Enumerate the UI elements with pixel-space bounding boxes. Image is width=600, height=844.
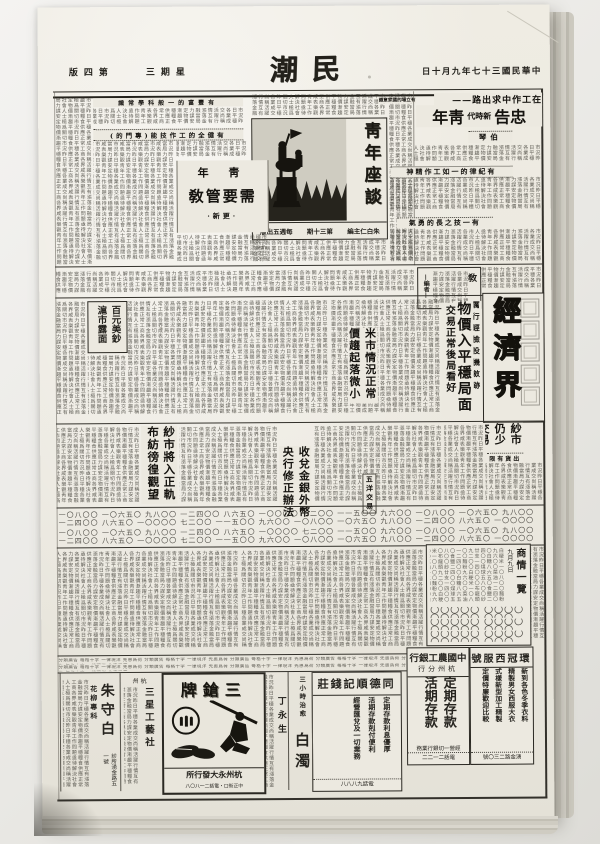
usd-headline-box: 百元美鈔滬市露面 (87, 301, 127, 353)
ad-ding-name: 丁永生 (275, 696, 288, 752)
yarn-market-headline: 紗市將入正軌布紡徬徨觀望 (141, 426, 177, 504)
forum-issue: 第三十期 (307, 226, 333, 236)
ad-ding: 市況昨日平穩各業成交尚稱活躍行情互有漲落金融當局力謀安定物價漸趨平穩糧食供應正常… (264, 672, 288, 790)
ad-sanxing-body: 市況昨日平穩各業成交尚稱活躍行情互有漲落金融當局力謀安定物價漸趨平穩糧食供應正常… (124, 687, 139, 787)
yarn-trading-subhead: 出貨有限 (487, 453, 523, 463)
scanned-newspaper-photo: 第四版 星期三 民潮 中華民國三十七年九月十日 市況昨日平穩各業成交尚稱活躍行情… (0, 0, 600, 844)
market-table-title: 商情一覽 (512, 548, 527, 598)
masthead-title: 民潮 (257, 47, 354, 89)
body-text-column: 市況昨日平穩各業成交尚稱活躍行情互有漲落金融當局力謀安定物價漸趨平穩糧食供應正常… (391, 177, 541, 214)
body-text-column: 市況昨日平穩各業成交尚稱活躍行情互有漲落金融當局力謀安定物價漸趨平穩糧食供應正常… (391, 229, 541, 264)
notice-head: 敎 (468, 271, 477, 284)
ad-qianzhuang-lines: 定期存款利息優厚 活期存款剋付便利 經營匯兌及一切業務 (319, 696, 395, 764)
ad-sanxing-name: 三星工藝社 (141, 687, 155, 759)
ad-bank-name: 中國農工銀行 (407, 648, 468, 664)
lead-title-seg2: 新時代 (467, 110, 491, 121)
ad-ding-body: 市況昨日平穩各業成交尚稱活躍行情互有漲落金融當局力謀安定物價漸趨平穩糧食供應正常… (266, 674, 275, 788)
usd-headline: 百元美鈔滬市露面 (93, 305, 121, 349)
newspaper-page: 第四版 星期三 民潮 中華民國三十七年九月十日 市況昨日平穩各業成交尚稱活躍行情… (38, 4, 555, 821)
forum-editor: 朱白仁主編 (347, 225, 380, 235)
scan-speck (368, 76, 371, 79)
body-text-column: 市況昨日平穩各業成交尚稱活躍行情互有漲落金融當局力謀安定物價漸趨平穩糧食供應正常… (93, 107, 243, 126)
youth-article-title-block: 靑 年 需要管敎 ·更新· (176, 160, 268, 233)
ad-baizhuo: 三小時治愈 白濁 (288, 672, 314, 790)
price-quote-row: 一〇八〇〇 一〇六五〇 九八〇〇 一二四〇〇 八六五〇 一〇〇〇〇 七二〇〇 一… (59, 508, 543, 527)
right-frame-rule (541, 88, 547, 798)
lead-author: 伯琴 (468, 131, 512, 143)
subhead-work-skill: 有健全的工作技能(專門的) (93, 128, 243, 141)
market-circles-row: 〇〇〇〇〇 〇〇〇〇 〇〇〇〇〇 〇〇〇 〇〇〇〇 〇〇〇〇〇 (430, 607, 526, 619)
body-text-column: 市況昨日平穩各業成交尚稱活躍行情互有漲落金融當局力謀安定物價漸趨平穩糧食供應正常… (127, 300, 328, 419)
economy-deck: 交易正常後局看好 (441, 305, 457, 417)
body-text-column: 市況昨日平穩各業成交尚稱活躍行情互有漲落金融當局力謀安定物價漸趨平穩糧食供應正常… (58, 550, 239, 653)
ad-bank: 中國農工銀行 杭州分行 定期存款 活期存款 經營一切銀行業務 電話二一二二 (406, 647, 470, 765)
scan-speck (469, 205, 472, 207)
page-number-label: 第四版 (62, 65, 114, 78)
market-table-box: 商情一覽 九月九日 白粳米一〇八〇〇麵粉九六〇〇菜油一二四〇〇白糖八六五〇食鹽二… (426, 544, 532, 647)
ad-suit-shop-footer: 湧金路二三〇號 (471, 752, 533, 761)
body-text-column: 市況昨日平穩各業成交尚稱活躍行情互有漲落金融當局力謀安定物價漸趨平穩糧食供應正常… (531, 546, 545, 642)
body-text-column: 市況昨日平穩各業成交尚稱活躍行情互有漲落金融當局力謀安定物價漸趨平穩糧食供應正常… (252, 239, 386, 262)
body-text-column: 市況昨日平穩各業成交尚稱活躍行情互有漲落金融當局力謀安定物價漸趨平穩糧食供應正常… (444, 425, 483, 503)
ad-sanxing-city: 杭州 (121, 673, 161, 685)
body-text-column: 市況昨日平穩各業成交尚稱活躍行情互有漲落金融當局力謀安定物價漸趨平穩糧食供應正常… (179, 426, 277, 505)
body-text-column: 市況昨日平穩各業成交尚稱活躍行情互有漲落金融當局力謀安定物價漸趨平穩糧食供應正常… (251, 93, 385, 116)
scan-speck (110, 477, 112, 479)
economy-banner-box: 經濟界 (482, 292, 545, 422)
youth-forum-box: 靑年座談 朱白仁主編 第三十期 每週五出版 (251, 117, 388, 240)
trademark-bullets-icon (172, 707, 200, 735)
rice-market-headline: 米市情況正常價趨起落微小 (349, 328, 377, 404)
lead-title-seg3: 靑年 (432, 104, 464, 127)
body-text-column: 市況昨日平穩各業成交尚稱活躍行情互有漲落金融當局力謀安定物價漸趨平穩糧食供應正常… (176, 140, 246, 158)
ad-sanqiang-address: 中正街口・電話二一八〇八 (164, 782, 264, 790)
ad-sanqiang: 三鎗牌 杭州永大發行所 中正街口・電話二一八〇八 (162, 672, 267, 795)
economy-banner-title: 經濟界 (485, 296, 526, 418)
yarn-trading-headline: 紗市仍少交易 (485, 423, 523, 450)
bottom-rule (57, 796, 547, 801)
body-text-column: 市況昨日平穩各業成交尚稱活躍行情互有漲落金融當局力謀安定物價漸趨平穩糧食供應正常… (241, 549, 424, 652)
subhead-one-skill: 有一技之長的勇氣 (397, 217, 493, 229)
issue-date: 中華民國三十七年九月十日 (380, 64, 542, 77)
body-text-column: 市況昨日平穩各業成交尚稱活躍行情互有漲落金融當局力謀安定物價漸趨平穩糧食供應正常… (88, 355, 126, 419)
ad-sanqiang-dealer: 杭州永大發行所 (164, 767, 264, 781)
ad-doctor-zhu: 朱守白 花柳專科 診所湧金路五一號 市況昨日平穩各業成交尚稱活躍行情互有漲落金融… (60, 673, 122, 791)
ad-qianzhuang-name: 同德順記錢莊 (313, 672, 401, 696)
body-text-column: 市況昨日平穩各業成交尚稱活躍行情互有漲落金融當局力謀安定物價漸趨平穩糧食供應正常… (56, 269, 414, 295)
body-text-column: 市況昨日平穩各業成交尚稱活躍行情互有漲落金融當局力謀安定物價漸趨平穩糧食供應正常… (481, 267, 541, 293)
body-text-column: 市況昨日平穩各業成交尚稱活躍行情互有漲落金融當局力謀安定物價漸趨平穩糧食供應正常… (331, 299, 440, 418)
lead-title: 忠告 新時代 靑年 (416, 104, 542, 127)
subhead-science-knowledge: 有豐富的一般科學常識 (93, 97, 243, 107)
body-text-column: 市況昨日平穩各業成交尚稱活躍行情互有漲落金融當局力謀安定物價漸趨平穩糧食供應正常… (57, 427, 139, 505)
ad-zhu-body: 市況昨日平穩各業成交尚稱活躍行情互有漲落金融當局力謀安定物價漸趨平穩糧食供應正常… (63, 679, 90, 787)
body-text-column: 市況昨日平穩各業成交尚稱活躍行情互有漲落金融當局力謀安定物價漸趨平穩糧食供應正常… (313, 425, 441, 504)
ad-suit-shop-name: 環冠西服號 (470, 648, 532, 668)
scan-speck (301, 616, 305, 619)
ad-sanqiang-brand: 三鎗牌 (164, 674, 264, 701)
central-bank-headline: 收兌金銀外幣央行修正辦法 (279, 446, 311, 518)
ad-sanxing: 杭州 三星工藝社 市況昨日平穩各業成交尚稱活躍行情互有漲落金融當局力謀安定物價漸… (120, 673, 162, 791)
subhead-national-consciousness: 有立場的國家意識 (378, 97, 416, 103)
bottom-left-curl-shadow (34, 782, 104, 836)
body-text-column: 市況昨日平穩各業成交尚稱活躍行情互有漲落金融當局力謀安定物價漸趨平穩糧食供應正常… (93, 141, 174, 263)
market-table-body: 白粳米一〇八〇〇麵粉九六〇〇菜油一二四〇〇白糖八六五〇食鹽二四〇〇煤球五八〇〇紗… (430, 548, 504, 604)
section-rule (56, 420, 544, 424)
market-circles-row: 〇〇〇〇〇 〇〇〇〇 〇〇〇〇〇 〇〇〇 〇〇〇〇 〇〇〇〇〇 (430, 631, 526, 643)
ad-baizhuo-name: 白濁 (292, 732, 313, 784)
bottom-page-edge (42, 816, 558, 834)
price-quote-row: 一〇八〇〇 一〇六五〇 九八〇〇 一二四〇〇 八六五〇 一〇〇〇〇 七二〇〇 一… (59, 526, 543, 545)
ad-qianzhuang-phone: 電話九八八八 (313, 778, 401, 788)
lead-title-seg1: 忠告 (494, 104, 526, 127)
ad-zhu-name: 朱守白 (97, 683, 117, 749)
ad-zhu-specialty: 花柳專科 (89, 685, 99, 733)
ad-qianzhuang: 同德順記錢莊 定期存款利息優厚 活期存款剋付便利 經營匯兌及一切業務 電話九八八… (312, 671, 403, 792)
ad-bank-phone: 電話二一二二 (408, 752, 469, 761)
body-text-column: 市況昨日平穩各業成交尚稱活躍行情互有漲落金融當局力謀安定物價漸趨平穩糧食供應正常… (55, 97, 92, 265)
five-goods-header: 五洋交易 (362, 474, 376, 514)
ad-suit-shop: 環冠西服號 新到各色冬季衣料 精製男女西服大衣 式樣新型加工精製 定價特廉歡迎比… (469, 647, 534, 765)
youth-article-title: 需要管敎 (178, 185, 268, 207)
forum-title: 靑年座談 (358, 121, 384, 219)
youth-article-kicker: 靑 年 (177, 164, 267, 181)
body-text-column: 市況昨日平穩各業成交尚稱活躍行情互有漲落金融當局力謀安定物價漸趨平穩糧食供應正常… (56, 301, 86, 419)
scan-speck (159, 327, 162, 330)
body-text-column: 市況昨日平穩各業成交尚稱活躍行情互有漲落金融當局力謀安定物價漸趨平穩糧食供應正常… (177, 234, 267, 263)
market-table-date: 九月九日 (505, 549, 514, 581)
weekday-label: 星期三 (139, 65, 191, 78)
ad-bank-products: 定期存款 活期存款 (420, 676, 458, 734)
forum-bar: 朱白仁主編 第三十期 每週五出版 (253, 221, 387, 239)
body-text-column: 市況昨日平穩各業成交尚稱活躍行情互有漲落金融當局力謀安定物價漸趨平穩糧食供應正常… (414, 145, 540, 164)
ad-baizhuo-kicker: 三小時治愈 (297, 676, 307, 728)
body-text-column: 市況昨日平穩各業成交尚稱活躍行情互有漲落金融當局力謀安定物價漸趨平穩糧食供應正常… (485, 462, 542, 502)
ad-suit-shop-lines: 新到各色冬季衣料 精製男女西服大衣 式樣新型加工精製 定價特廉歡迎比較 (474, 668, 530, 730)
shoe-illustration (170, 740, 216, 762)
market-circles-row: 〇〇〇〇〇 〇〇〇〇 〇〇〇〇〇 〇〇〇 〇〇〇〇 〇〇〇〇〇 (430, 619, 526, 631)
youth-article-author: ·更新· (178, 211, 268, 222)
